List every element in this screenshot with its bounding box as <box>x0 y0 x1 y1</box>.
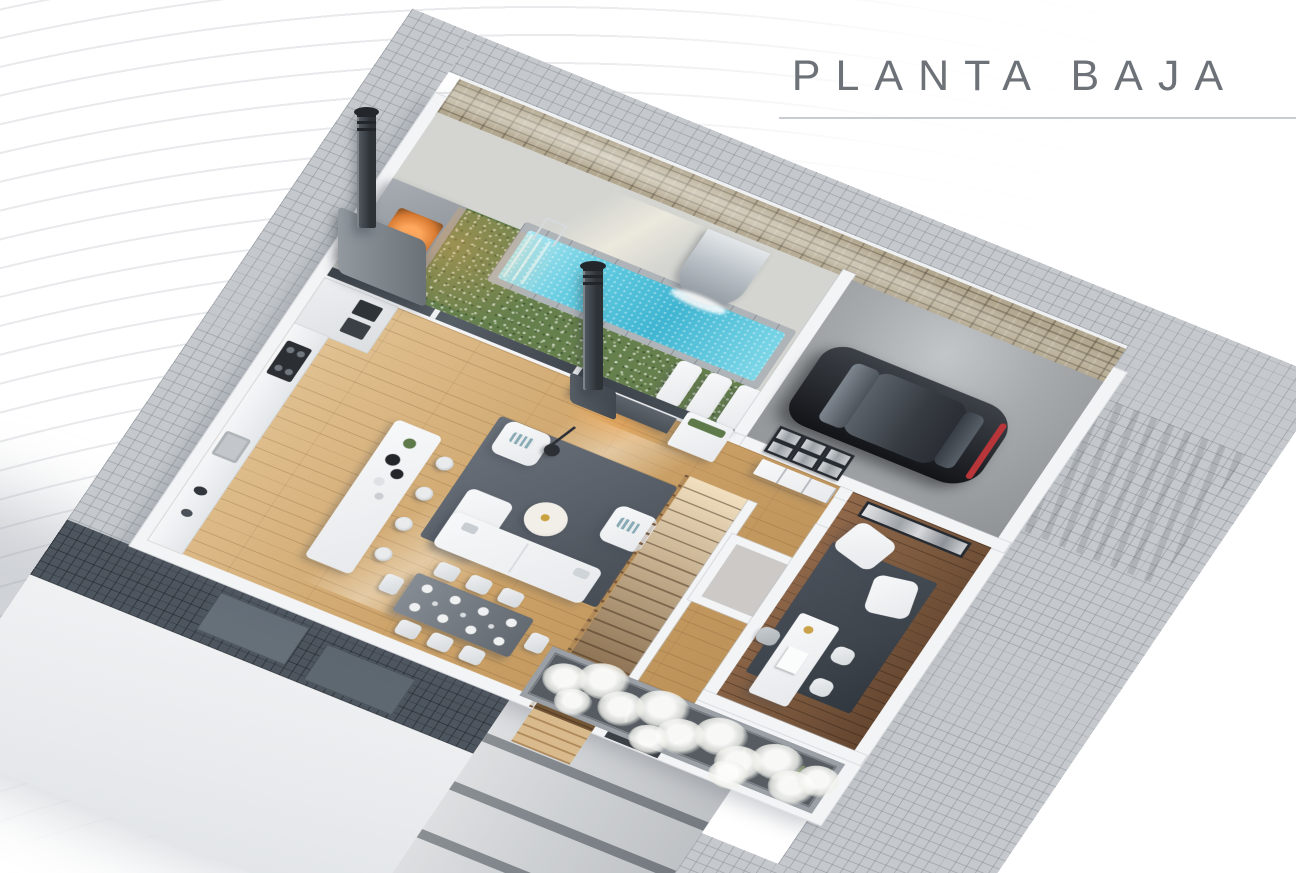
page-title: PLANTA BAJA <box>792 52 1238 101</box>
floor-plan-scene: PLANTA BAJA <box>0 0 1296 873</box>
bbq-chimney-cap <box>354 107 379 117</box>
fireplace-flue-cap <box>580 261 606 271</box>
fireplace-flue-rings <box>583 268 603 288</box>
title-divider <box>779 117 1296 119</box>
bbq-chimney-rings <box>357 114 376 134</box>
